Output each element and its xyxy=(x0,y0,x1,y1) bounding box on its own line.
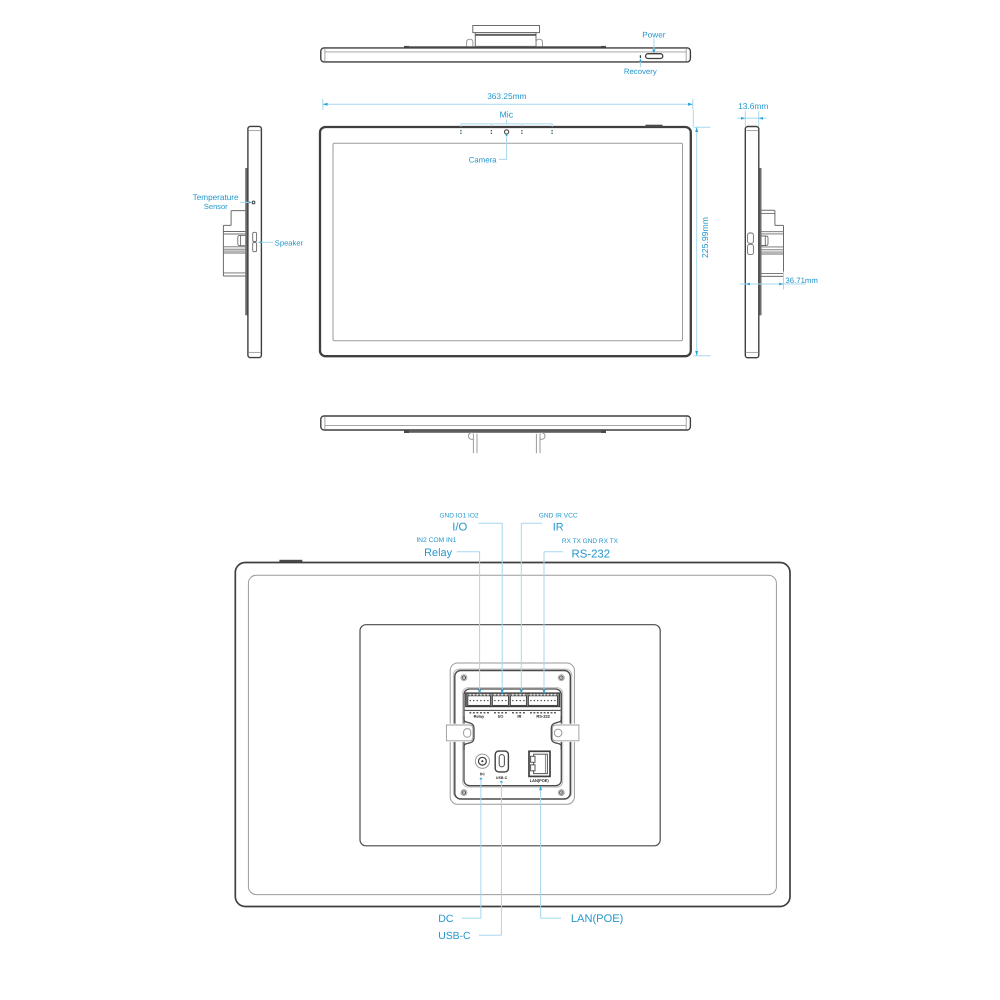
svg-text:Recovery: Recovery xyxy=(624,67,657,76)
svg-text:Speaker: Speaker xyxy=(275,238,304,247)
svg-text:LAN(POE): LAN(POE) xyxy=(571,913,623,925)
svg-text:13.6mm: 13.6mm xyxy=(738,101,768,111)
svg-text:Power: Power xyxy=(642,30,665,39)
svg-text:IR: IR xyxy=(517,714,521,719)
svg-text:RS-232: RS-232 xyxy=(571,548,610,560)
svg-text:IN2 COM IN1: IN2 COM IN1 xyxy=(416,537,456,544)
svg-text:USB-C: USB-C xyxy=(438,931,471,942)
svg-text:I/O: I/O xyxy=(452,521,467,533)
svg-text:Sensor: Sensor xyxy=(204,202,228,211)
svg-text:DC: DC xyxy=(480,772,485,776)
svg-text:IR: IR xyxy=(553,521,564,533)
svg-text:Mic: Mic xyxy=(499,110,513,120)
svg-text:363.25mm: 363.25mm xyxy=(487,91,526,101)
svg-text:36.71mm: 36.71mm xyxy=(785,276,818,285)
svg-text:USB-C: USB-C xyxy=(496,776,508,780)
svg-text:LAN(POE): LAN(POE) xyxy=(530,779,549,783)
svg-text:Relay: Relay xyxy=(474,714,485,719)
svg-text:Camera: Camera xyxy=(469,156,497,165)
svg-text:DC: DC xyxy=(438,913,454,925)
svg-text:RX TX GND RX TX: RX TX GND RX TX xyxy=(562,538,619,545)
svg-text:RS-232: RS-232 xyxy=(536,714,550,719)
svg-text:GND IR VCC: GND IR VCC xyxy=(539,512,578,519)
svg-text:GND IO1 IO2: GND IO1 IO2 xyxy=(439,512,478,519)
svg-text:Relay: Relay xyxy=(424,547,452,559)
svg-text:Temperature: Temperature xyxy=(193,193,239,202)
svg-text:225.99mm: 225.99mm xyxy=(700,217,710,258)
svg-text:I/O: I/O xyxy=(498,714,503,719)
